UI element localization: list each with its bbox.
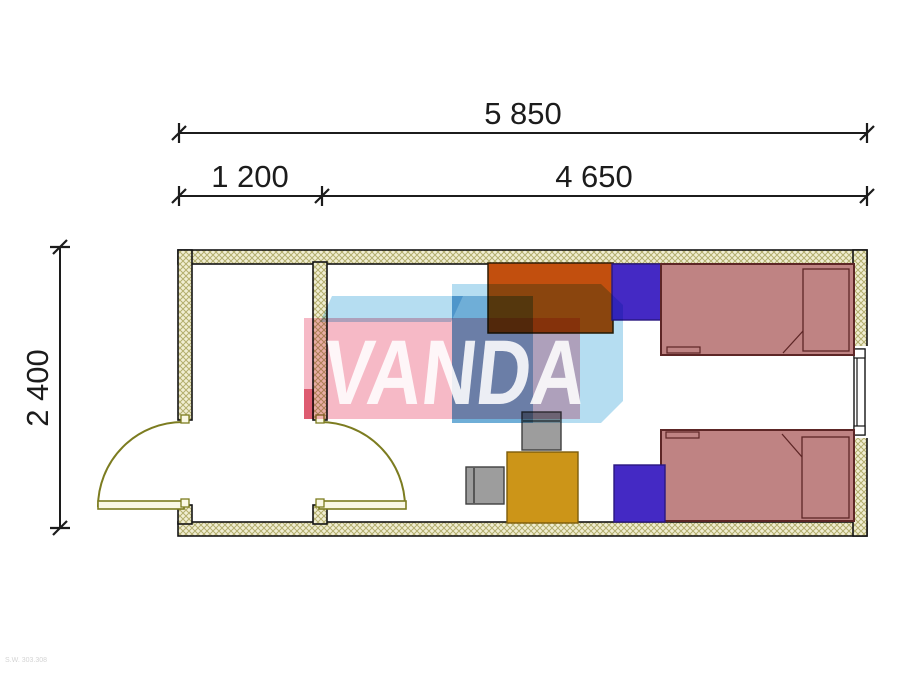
bed-bottom-outline — [661, 430, 854, 521]
interior-door-swing-arc — [320, 422, 405, 507]
nightstand-bottom — [614, 465, 665, 522]
bed-top-outline — [661, 264, 854, 355]
dimension-label-total-width: 5 850 — [484, 96, 562, 131]
watermark-red-strip — [304, 389, 314, 419]
chair-left — [466, 467, 504, 504]
jamb-left-top — [181, 415, 189, 423]
dimension-label-depth: 2 400 — [20, 349, 55, 427]
window-sill-bottom — [854, 426, 865, 435]
window-right-wall — [852, 346, 868, 438]
exterior-door-swing-arc — [98, 422, 183, 507]
wall-top — [178, 250, 867, 264]
corner-note: S.W. 303.308 — [5, 657, 47, 664]
single-bed-bottom — [661, 430, 854, 521]
wall-bottom — [178, 522, 867, 536]
watermark-text: VANDA — [318, 321, 591, 423]
floor-plan-drawing: VANDA 5 850 1 200 4 650 2 400 S.W. 303.3… — [0, 0, 924, 700]
jamb-partition-bottom — [316, 499, 324, 507]
table — [507, 452, 578, 523]
wall-left-upper — [178, 250, 192, 420]
watermark-logo: VANDA — [304, 284, 623, 424]
interior-door-leaf — [319, 501, 406, 509]
exterior-door — [98, 422, 184, 509]
interior-door — [319, 422, 406, 509]
floor-plan-canvas: VANDA 5 850 1 200 4 650 2 400 S.W. 303.3… — [0, 0, 924, 700]
window-sill-top — [854, 349, 865, 358]
door-jambs — [181, 415, 324, 507]
dimension-label-room-width: 4 650 — [555, 159, 633, 194]
dimension-label-vestibule-width: 1 200 — [211, 159, 289, 194]
wall-right-upper — [853, 250, 867, 347]
exterior-door-leaf — [98, 501, 184, 509]
doors — [98, 415, 406, 509]
jamb-left-bottom — [181, 499, 189, 507]
single-bed-top — [661, 264, 854, 355]
window-frame — [854, 349, 865, 435]
wall-right-lower — [853, 437, 867, 536]
